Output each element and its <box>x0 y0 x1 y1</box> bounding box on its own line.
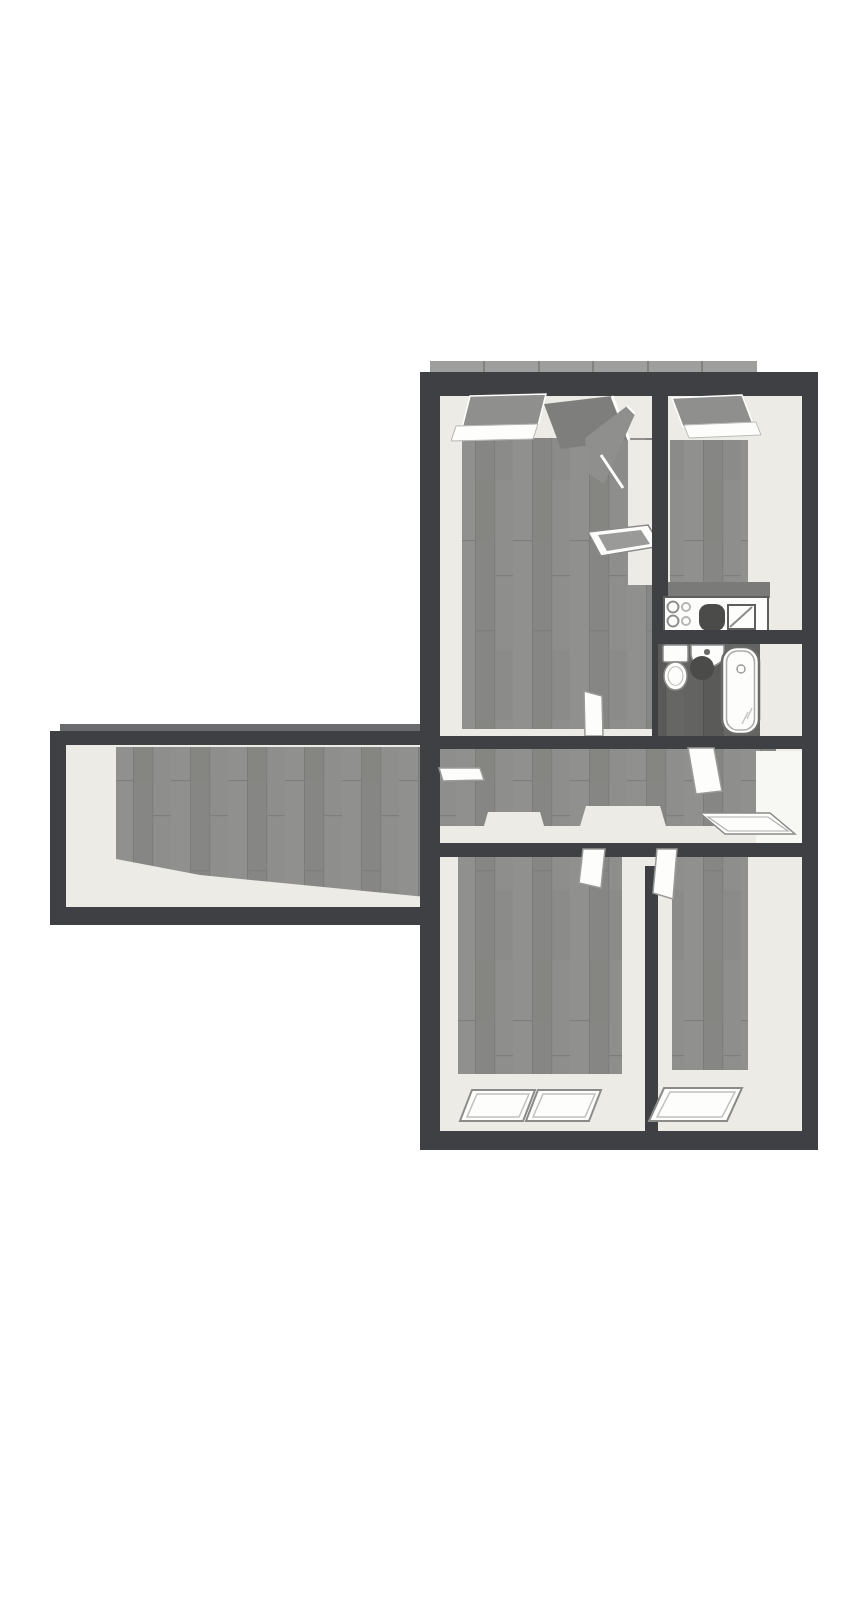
open-door-panel <box>653 849 677 899</box>
left-wing-window-band <box>60 724 424 732</box>
left-wing-room <box>50 724 430 925</box>
outer-wall-right <box>802 372 818 1150</box>
room-bottom-left <box>440 849 645 1131</box>
open-door-panel <box>579 849 605 888</box>
kitchen-dark-basin <box>699 604 725 631</box>
room-top-left-floor <box>462 438 652 729</box>
bathtub <box>722 647 759 734</box>
partition-wall-kitchen-bath <box>652 630 802 644</box>
left-wing-wall-top <box>50 731 430 747</box>
hallway-wall-north <box>440 736 802 749</box>
window-pane-top-left <box>462 394 546 428</box>
room-bottom-right-floor <box>672 857 748 1070</box>
hallway <box>439 748 802 843</box>
floor-plan <box>0 0 867 1600</box>
outer-wall-left <box>420 372 440 1150</box>
outer-wall-bottom <box>420 1131 818 1150</box>
bathroom <box>658 644 802 737</box>
floor-plan-canvas <box>0 0 867 1600</box>
toilet <box>663 645 688 690</box>
left-wing-wall-bottom <box>50 905 430 925</box>
kitchen <box>664 395 802 632</box>
hallway-light-patch <box>575 806 671 843</box>
kitchen-floor <box>670 440 748 598</box>
room-bottom-left-floor <box>458 857 622 1074</box>
left-wing-wall-left <box>50 731 68 925</box>
room-top-left <box>440 394 661 749</box>
room-bottom-right <box>649 849 802 1131</box>
basin-tap <box>704 649 710 655</box>
basin-shadow <box>690 656 714 680</box>
room-top-left-wall-face-right <box>628 440 652 585</box>
hallway-light-patch <box>479 812 549 843</box>
counter-shadow <box>668 582 770 598</box>
window-sill-kitchen <box>684 422 761 438</box>
open-door-panel <box>439 768 484 781</box>
outer-wall-top <box>420 372 818 396</box>
window-sill-top-left <box>451 424 538 441</box>
hallway-wall-south <box>440 843 802 857</box>
open-door-panel <box>584 691 603 736</box>
partition-wall-bottom <box>645 857 658 1131</box>
